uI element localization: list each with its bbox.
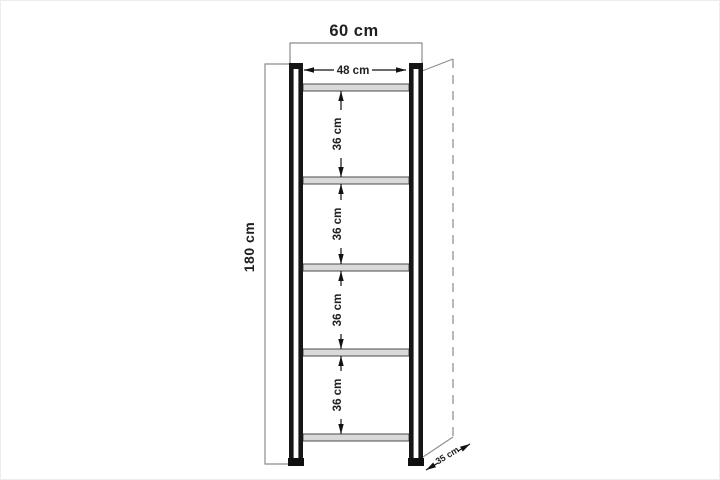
depth-dimension: 35 cm [426, 444, 470, 470]
gap3-arrow-down [338, 339, 343, 349]
shelf-gap-dimension-4: 36 cm [332, 356, 344, 434]
shelf-2 [303, 177, 409, 184]
right-post-foot [408, 458, 424, 466]
shelf-gap-dimension-3: 36 cm [332, 271, 344, 349]
overall-height-label: 180 cm [241, 222, 257, 272]
shelf-1 [303, 84, 409, 91]
gap1-arrow-up [338, 91, 343, 101]
inner-width-label: 48 cm [337, 65, 370, 77]
shelf-gap-dimension-2: 36 cm [332, 184, 344, 264]
shelf-4 [303, 349, 409, 356]
bookshelf-technical-drawing: 60 cm 180 cm [1, 1, 720, 480]
gap2-arrow-down [338, 254, 343, 264]
overall-width-dimension-line [290, 43, 422, 63]
overall-width-label: 60 cm [329, 22, 378, 40]
depth-label: 35 cm [434, 445, 461, 467]
depth-arrow-right [460, 444, 470, 452]
inner-width-arrow-right [396, 67, 406, 72]
gap2-arrow-up [338, 184, 343, 194]
inner-width-arrow-left [304, 67, 314, 72]
overall-height-dimension-line [265, 64, 291, 464]
shelf-3 [303, 264, 409, 271]
shelf-5 [303, 434, 409, 441]
right-upright [408, 63, 424, 466]
shelf-gap-label-2: 36 cm [332, 208, 344, 241]
gap1-arrow-down [338, 167, 343, 177]
gap3-arrow-up [338, 271, 343, 281]
shelf-gap-dimension-1: 36 cm [332, 91, 344, 177]
left-post-channel [294, 69, 299, 458]
inner-width-dimension: 48 cm [304, 65, 406, 77]
depth-perspective-edges [422, 59, 453, 457]
overall-width-dimension: 60 cm [290, 22, 422, 63]
gap4-arrow-down [338, 424, 343, 434]
left-post-foot [288, 458, 304, 466]
right-post-channel [414, 69, 419, 458]
overall-height-dimension: 180 cm [241, 64, 291, 464]
depth-edge-top [422, 59, 453, 71]
left-upright [288, 63, 304, 466]
shelves [303, 84, 409, 441]
depth-arrow-left [426, 463, 436, 471]
dimension-drawing-canvas: 60 cm 180 cm [0, 0, 720, 480]
shelf-gap-label-4: 36 cm [332, 379, 344, 412]
shelf-gap-label-3: 36 cm [332, 294, 344, 327]
shelf-gap-label-1: 36 cm [332, 118, 344, 151]
gap4-arrow-up [338, 356, 343, 366]
